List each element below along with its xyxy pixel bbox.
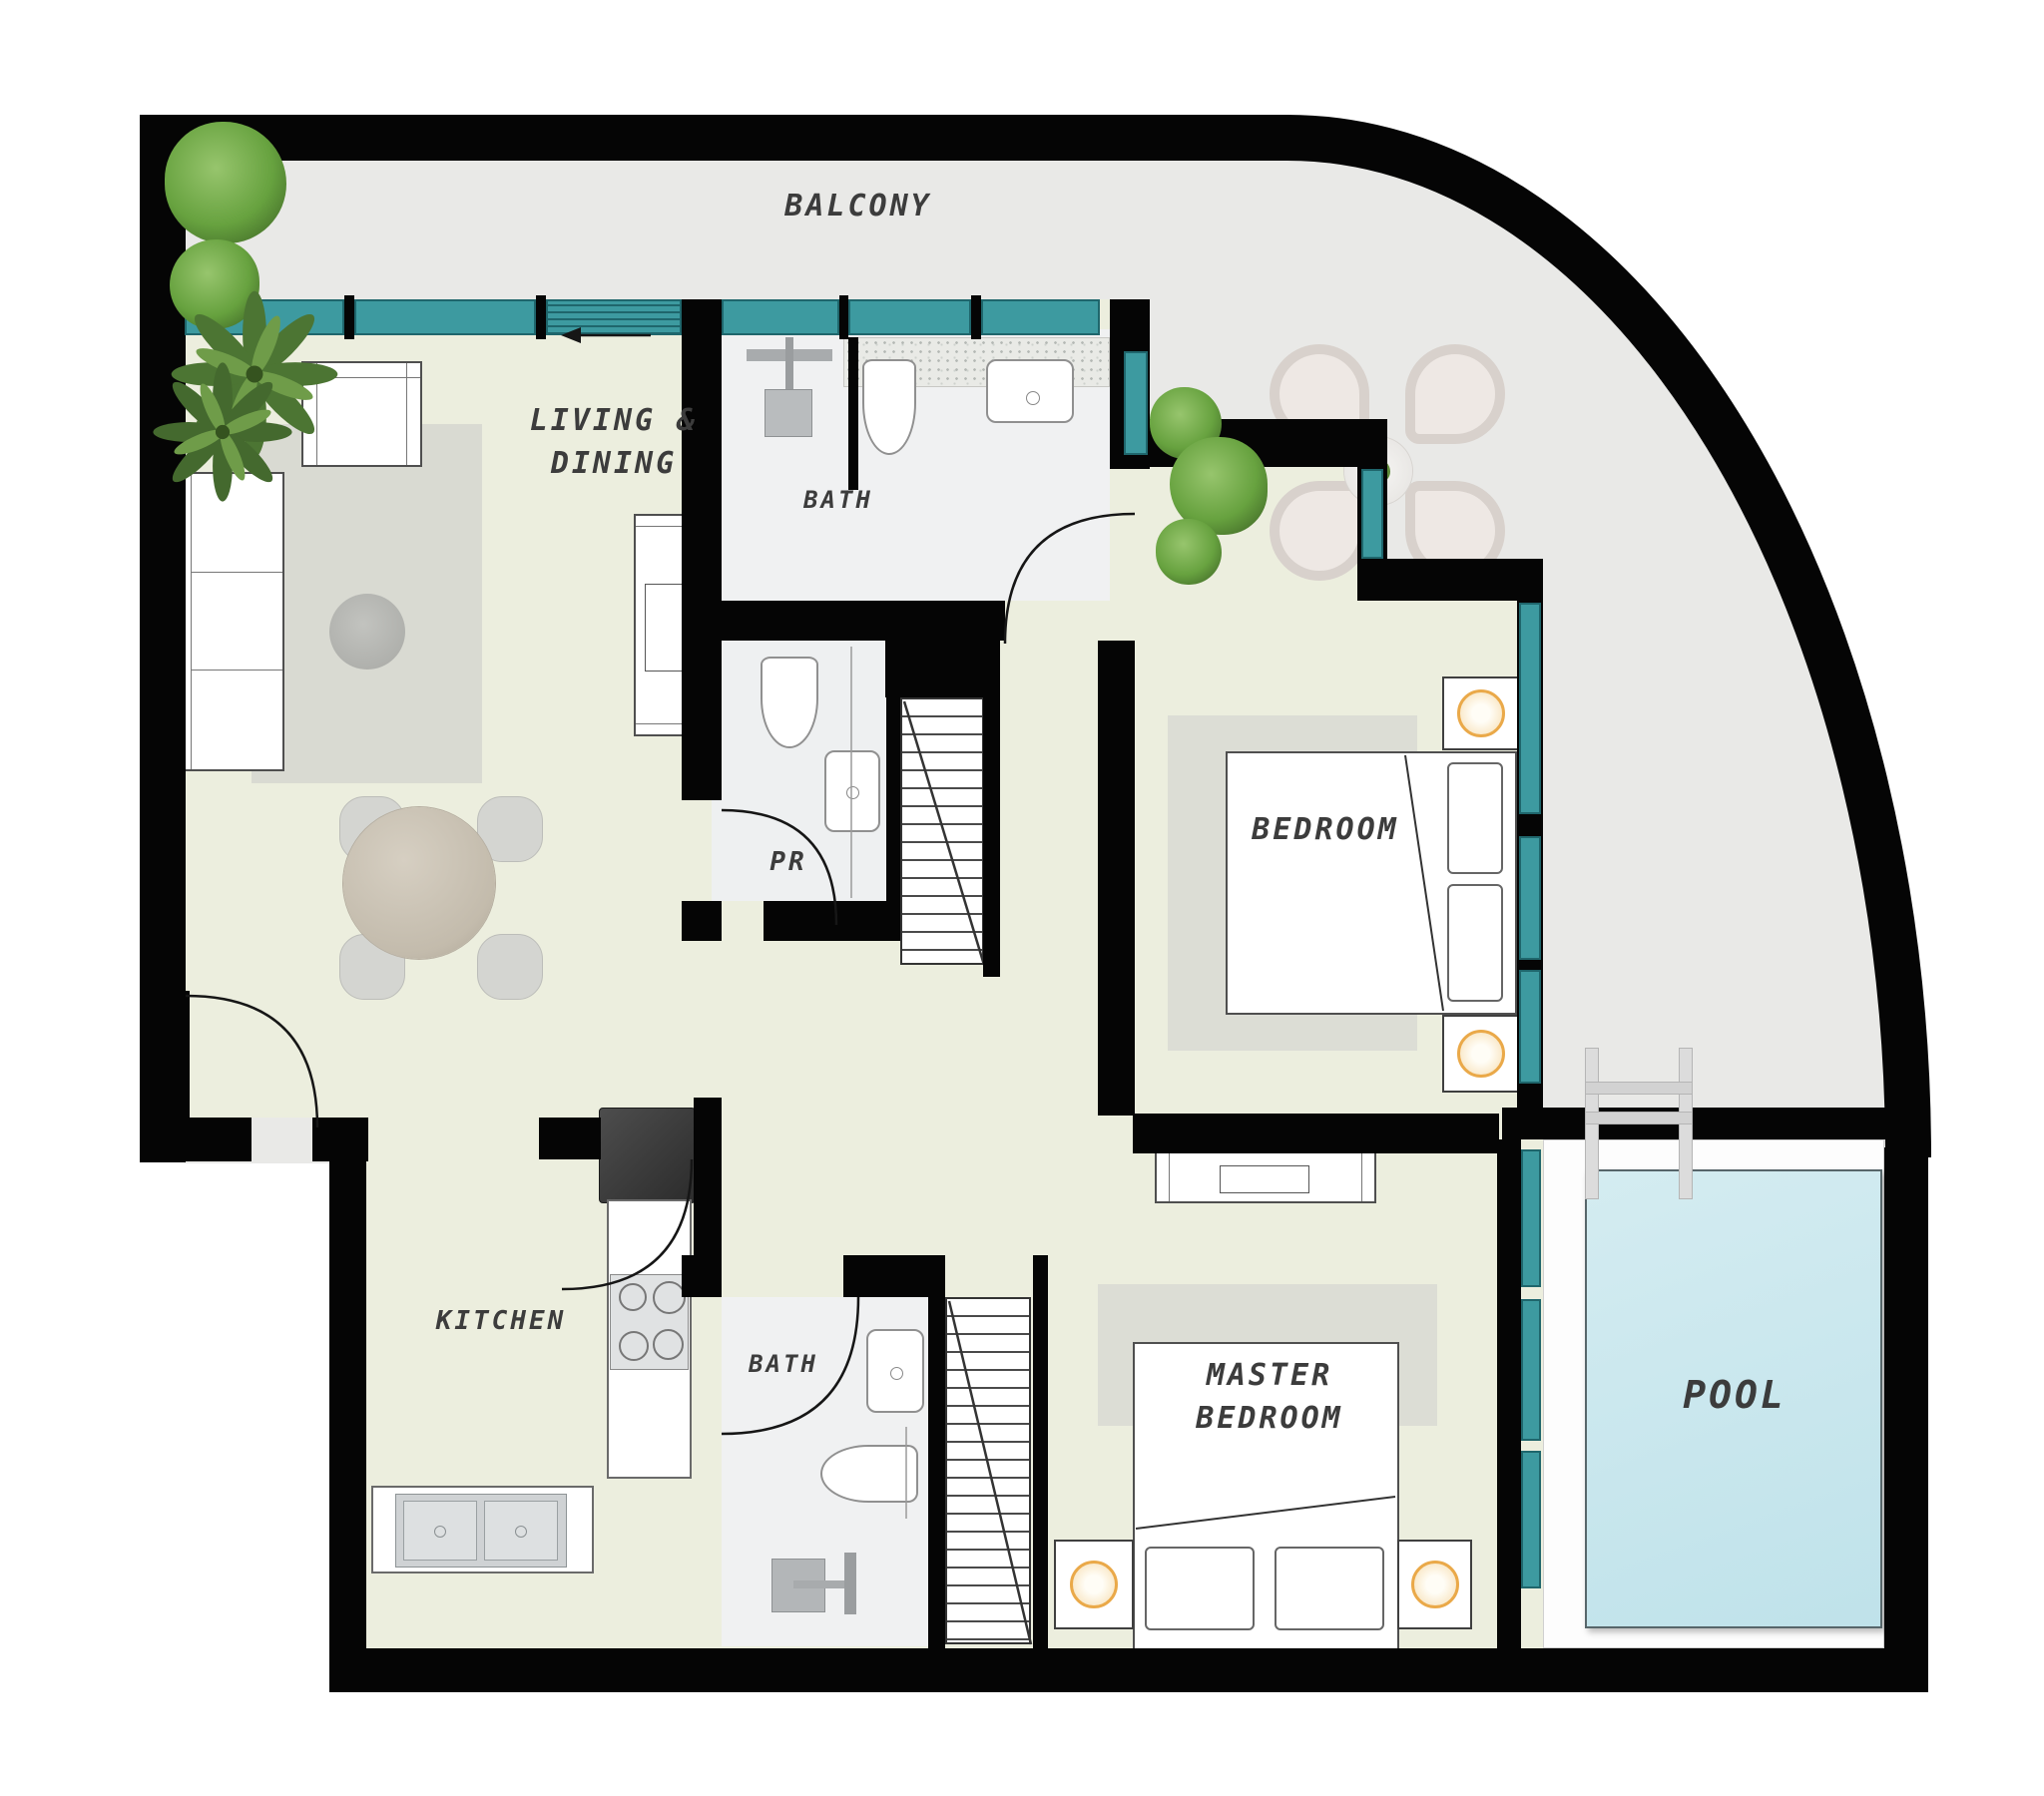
wall-kitchen-top — [539, 1118, 601, 1159]
pool-label-text: POOL — [1683, 1368, 1787, 1423]
bath-upper-label-text: BATH — [803, 483, 873, 518]
dining-chair-icon — [477, 934, 543, 1000]
living-dining-label: LIVING & DINING — [469, 394, 759, 490]
wall-bath2-right — [928, 1255, 945, 1648]
door-leaf — [178, 991, 190, 1130]
wall-pool-top — [1502, 1108, 1896, 1139]
nightstand-lamp-icon — [1457, 689, 1505, 737]
washbasin-icon — [824, 750, 880, 832]
kitchen-sink-icon — [395, 1494, 567, 1568]
bedroom-label-text: BEDROOM — [1252, 808, 1398, 852]
coffee-table-icon — [329, 594, 405, 670]
stairs-icon — [900, 697, 984, 965]
window-mullion — [839, 295, 848, 339]
master-bedroom-label: MASTER BEDROOM — [1120, 1345, 1419, 1449]
wall-stairs2-right — [1033, 1255, 1048, 1648]
sliding-door-icon — [546, 299, 682, 335]
nightstand-lamp-icon — [1457, 1030, 1505, 1078]
shower-pipe — [785, 337, 793, 395]
wall-segment — [694, 1098, 722, 1257]
window-icon — [1361, 469, 1383, 559]
washbasin-icon — [986, 359, 1074, 423]
nightstand — [1442, 1015, 1520, 1093]
living-label-line2: DINING — [551, 442, 677, 486]
nightstand-lamp-icon — [1411, 1561, 1459, 1608]
shower-valve — [844, 1553, 856, 1614]
outdoor-chair-icon — [1405, 344, 1505, 444]
window-icon — [848, 299, 971, 335]
wall-bath2-top-left — [682, 1255, 722, 1297]
fridge-icon — [599, 1108, 696, 1203]
window-icon — [354, 299, 536, 335]
sofa-icon — [173, 472, 284, 771]
wall-master-right-base — [1497, 1139, 1521, 1648]
pillow — [1275, 1547, 1384, 1630]
pillow — [1447, 762, 1503, 874]
nightstand — [1054, 1540, 1134, 1629]
window-mullion — [344, 295, 354, 339]
toilet-icon — [820, 1445, 918, 1503]
window-icon — [1519, 970, 1541, 1084]
stairs-diagonal — [947, 1299, 1033, 1646]
tv-console-icon — [1155, 1149, 1376, 1203]
tree-icon — [1156, 519, 1222, 585]
window-icon — [1519, 603, 1541, 814]
window-icon — [1521, 1299, 1541, 1441]
window-icon — [1124, 351, 1148, 455]
wall-notch-step — [1357, 559, 1527, 601]
wall-segment — [140, 1118, 252, 1161]
pool-label: POOL — [1610, 1369, 1859, 1423]
balcony-label-text: BALCONY — [784, 185, 931, 228]
window-icon — [1521, 1451, 1541, 1588]
window-icon — [722, 299, 839, 335]
bedroom-label: BEDROOM — [1206, 806, 1445, 854]
wall-segment — [682, 901, 722, 941]
stairs-icon — [945, 1297, 1031, 1644]
floor-plan: BALCONY LIVING & DINING BATH PR BEDROOM … — [0, 0, 2044, 1796]
wall-top — [140, 115, 1287, 161]
bath-lower-label: BATH — [704, 1343, 863, 1385]
wall-right — [1884, 1147, 1928, 1652]
tree-icon — [165, 122, 286, 243]
wall-bath2-top-right — [843, 1255, 941, 1297]
master-label-line2: BEDROOM — [1196, 1397, 1342, 1441]
wall-stairs-right — [983, 614, 1000, 977]
living-label-line1: LIVING & — [530, 399, 699, 443]
wall-bedroom-left — [1098, 641, 1135, 1116]
window-mullion — [536, 295, 546, 339]
wall-pr-left — [682, 641, 722, 800]
wall-pr-bottom — [764, 901, 900, 941]
powder-room-label-text: PR — [769, 844, 806, 882]
washbasin-icon — [866, 1329, 924, 1413]
nightstand-lamp-icon — [1070, 1561, 1118, 1608]
window-icon — [1521, 1149, 1541, 1287]
window-icon — [1519, 836, 1541, 960]
wall-kitchen-left — [329, 1118, 366, 1691]
palm-tree-icon — [152, 361, 293, 503]
bath-upper-label: BATH — [759, 479, 918, 521]
pool-ladder-icon — [1585, 1048, 1693, 1199]
cooktop-icon — [610, 1274, 689, 1370]
kitchen-label-text: KITCHEN — [436, 1303, 567, 1341]
dining-table-icon — [343, 807, 495, 959]
nightstand — [1442, 676, 1520, 750]
kitchen-label: KITCHEN — [381, 1299, 621, 1345]
shower-pipe — [793, 1580, 851, 1588]
master-label-line1: MASTER — [1207, 1354, 1332, 1398]
pillow — [1447, 884, 1503, 1002]
wall-master-top — [1133, 1114, 1499, 1153]
bath-divider-wall — [848, 337, 858, 490]
nightstand — [1397, 1540, 1472, 1629]
balcony-label: BALCONY — [699, 182, 1018, 231]
bath-lower-label-text: BATH — [749, 1347, 818, 1382]
window-icon — [981, 299, 1100, 335]
wall-bottom — [329, 1648, 1928, 1692]
pillow — [1145, 1547, 1255, 1630]
shower-head — [765, 389, 812, 437]
powder-room-label: PR — [719, 842, 858, 884]
window-mullion — [971, 295, 981, 339]
stairs-diagonal — [902, 699, 986, 967]
